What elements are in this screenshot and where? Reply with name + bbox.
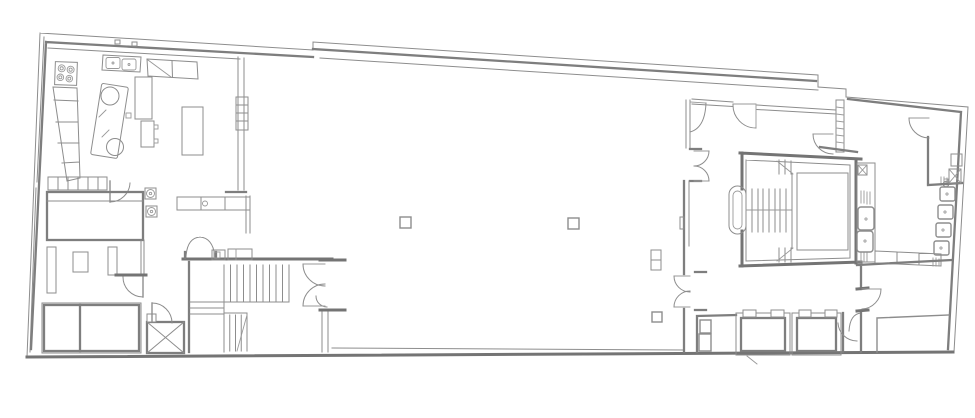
duct-hatch-strip (836, 100, 844, 152)
wall-cabinets (147, 59, 198, 79)
stair-open-well (797, 173, 848, 250)
partition-door (123, 277, 143, 297)
hall-column-2 (568, 218, 579, 229)
stair-east-wall (322, 312, 328, 352)
hall-east-wall (674, 100, 709, 352)
wall-stubs (47, 247, 117, 293)
tall-units (126, 77, 158, 147)
large-table (47, 192, 143, 240)
stair-break-line (237, 315, 247, 351)
hall-column-1 (400, 217, 411, 228)
side-room (47, 177, 157, 297)
east-wall-north-door (690, 102, 706, 132)
partition-wall (141, 240, 144, 274)
stove (55, 62, 78, 86)
kitchen-wall-lower (246, 196, 250, 233)
service-staircase (183, 237, 345, 352)
elevator-lobby (697, 315, 736, 352)
storage-table (42, 303, 141, 353)
floor-plan-drawing (0, 0, 975, 418)
grand-stair-inner-faces (746, 160, 850, 261)
washroom-north-door (813, 134, 833, 154)
stair-east-door (316, 260, 345, 310)
outline-wall-line (31, 42, 961, 349)
west-basin-2 (857, 231, 873, 252)
west-basin-1 (858, 207, 874, 230)
floor-plan-canvas (0, 0, 975, 418)
sink-counter (102, 55, 141, 72)
toilet-shaft-x (949, 169, 961, 183)
main-hall (400, 217, 662, 322)
floor-fixture-2 (146, 206, 157, 217)
elevator-shafts (736, 310, 861, 364)
stair-lobby-double-door (185, 237, 216, 258)
storage-room (42, 303, 184, 353)
floor-fixture-1 (145, 188, 156, 199)
curved-newel (729, 186, 746, 234)
cistern-box (951, 154, 962, 166)
cabinet-shaft-x (858, 165, 867, 175)
se-door-jambs (857, 288, 868, 311)
east-wall-double-door-north (690, 149, 709, 181)
lobby-north-door (733, 104, 756, 128)
washroom (857, 163, 955, 266)
prep-table (182, 107, 203, 155)
elevator-shaft-2 (792, 310, 841, 355)
se-closet-partition (877, 315, 949, 352)
hall-radiator (651, 250, 661, 270)
mid-cabinet-row (177, 197, 250, 210)
north-wall-vent-2 (132, 42, 137, 46)
stair-treads (190, 265, 289, 352)
hall-west-double-door (303, 264, 325, 306)
building-outline (27, 33, 968, 357)
lobby (692, 99, 857, 154)
toilet-room-door (909, 118, 929, 138)
elevator-shaft-1 (736, 310, 790, 355)
outline-outer-line (27, 33, 968, 357)
se-room-door (862, 289, 881, 309)
washroom-north-wall (820, 147, 857, 152)
outline-inner-face (48, 48, 818, 350)
east-wall-double-door-south (674, 272, 706, 310)
east-basin-row (933, 177, 955, 266)
toilet-room (909, 118, 962, 185)
hall-column-3 (652, 312, 662, 322)
return-flights (777, 160, 793, 262)
lobby-cabinet-2 (699, 334, 711, 351)
lobby-cabinet-1 (700, 320, 711, 333)
threshold-mark (747, 356, 757, 364)
south-east-room (857, 260, 952, 352)
base-cabinet-run (53, 87, 80, 181)
grand-staircase (729, 153, 861, 266)
lobby-north-wall (692, 99, 836, 114)
grand-stair-treads (746, 189, 792, 232)
kitchen-east-wall (238, 57, 244, 190)
shelf-row (48, 177, 107, 190)
north-wall-vent-1 (115, 40, 120, 44)
stair-rails (792, 173, 797, 248)
kitchen-island (91, 83, 129, 158)
